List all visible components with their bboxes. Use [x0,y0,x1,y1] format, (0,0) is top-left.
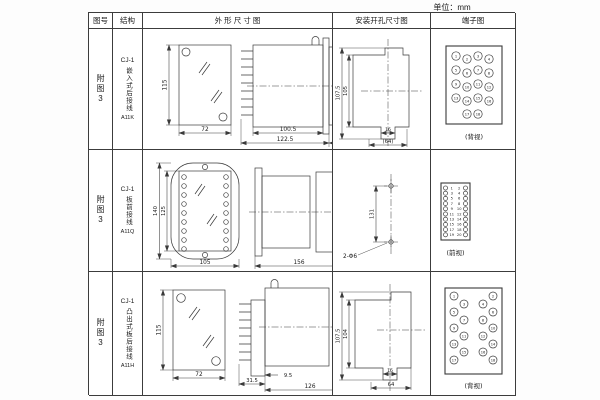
dim-depth-body: 126 [304,384,315,390]
dim-outer-height: 140 [153,206,159,216]
row2-outline-cell: 140 125 105 156 115 [143,150,333,272]
dim-hole-spacing: 131 [370,209,376,219]
terminal-drawing-a11q: 12 34 56 78 910 1112 1314 1516 1718 1920… [431,150,515,271]
terminal-number: 4 [488,57,491,61]
relay-case [179,171,231,251]
terminal-number: 15 [462,350,467,354]
terminal-number: 13 [450,218,455,222]
dim-depth-total: 122.5 [277,137,294,143]
terminal-number: 19 [450,233,455,237]
header-outline: 外 形 尺 寸 图 [143,13,333,29]
dimension-table: 图号 结构 外 形 尺 寸 图 安装开孔尺寸图 端子图 附图3 CJ-1 嵌入式… [88,12,515,395]
terminal-number: 3 [451,192,453,196]
terminal-number: 16 [481,350,486,354]
row3-code: A11H [121,363,134,369]
terminal-number: 9 [451,207,454,211]
terminal-number: 4 [482,302,485,306]
row3-mounting-cell: 107.5 104 16 64 [333,272,431,396]
row2-mounting-cell: 131 2-Φ6 [333,150,431,272]
terminal-number: 14 [465,99,470,103]
terminal-number: 10 [491,326,496,330]
view-label: (前视) [446,248,464,257]
row2-structure-text: 板前接线 [123,196,133,226]
terminal-number: 18 [476,112,481,116]
side-view: 100.5 122.5 35 [241,37,332,148]
terminal-number: 11 [476,82,481,86]
dim-notch: 16 [387,368,393,374]
terminal-number: 4 [458,192,461,196]
row3-model: CJ-1 [121,298,135,305]
terminal-number: 9 [453,326,456,330]
terminal-number: 6 [466,71,469,75]
terminal-number: 1 [455,54,457,58]
terminal-number: 5 [455,68,457,72]
row1-terminal-cell: 1 2 3 4 5 6 7 8 9 10 11 12 13 14 15 16 1… [431,29,516,150]
terminal-number: 15 [450,223,455,227]
front-view: 140 125 105 [153,163,239,268]
row2-figure: 附图3 [89,150,113,272]
flange-plate [171,163,239,259]
dim-outer-height: 107.5 [336,86,342,101]
front-view: 115 72 [163,45,232,136]
terminal-number: 17 [450,228,455,232]
terminal-number: 17 [452,358,457,362]
row3-structure-text: 凸出式板后接线 [123,308,133,361]
dim-depth: 156 [293,260,304,266]
dim-height: 115 [163,79,169,90]
terminal-number: 12 [457,212,462,216]
row1-structure-text: 嵌入式后接线 [123,67,133,112]
view-label: (背视) [465,132,483,141]
row1-figure: 附图3 [89,29,113,150]
row1-outline-cell: 115 72 100.5 122.5 35 [143,29,333,150]
outline-drawing-a11k: 115 72 100.5 122.5 35 [143,29,332,149]
terminal-number: 13 [454,96,459,100]
terminal-number: 8 [488,71,491,75]
terminal-number: 2 [458,186,460,190]
row3-figure: 附图3 [89,272,113,396]
row1-model: CJ-1 [121,57,135,64]
terminal-pins [239,304,251,360]
terminal-number: 3 [477,54,479,58]
row3-outline-cell: 115 72 31.5 9.5 126 [143,272,333,396]
dim-width: 72 [195,372,203,378]
header-terminal: 端子图 [431,13,516,29]
row2-model: CJ-1 [121,186,135,193]
terminal-number: 7 [451,202,453,206]
cutout-outline [355,292,411,380]
dim-opening: (64) [383,139,394,145]
row2-code: A11Q [121,229,135,235]
terminal-grid: 12 34 56 78 910 1112 1314 1516 1718 1920 [443,186,467,237]
terminal-number: 12 [487,85,492,89]
dim-opening: 64 [388,382,395,388]
terminal-number: 14 [491,342,496,346]
header-figure: 图号 [89,13,113,29]
terminal-number: 10 [457,207,462,211]
header-structure: 结构 [113,13,143,29]
terminal-number: 6 [458,197,461,201]
terminal-number: 16 [457,223,462,227]
dim-inner-height: 105 [343,86,349,96]
dim-depth-gap: 9.5 [284,373,292,379]
dim-inner-height: 104 [343,328,349,339]
terminal-number: 5 [453,310,455,314]
terminal-number: 17 [465,112,470,116]
lifting-hook [271,280,278,289]
row1-structure: CJ-1 嵌入式后接线 A11K [113,29,143,150]
dim-width: 105 [199,260,210,266]
outline-drawing-a11h: 115 72 31.5 9.5 126 [143,272,332,395]
mounting-drawing-a11k: 107.5 105 16 (64) [333,29,430,149]
dim-inner-height: 125 [161,206,167,216]
terminal-drawing-a11h: 1 2 3 4 5 6 7 8 9 10 11 12 13 14 15 16 1… [431,272,515,395]
terminal-number: 15 [476,96,481,100]
terminal-number: 7 [463,318,465,322]
terminal-number: 12 [481,334,486,338]
terminal-number: 2 [492,294,494,298]
header-mounting: 安装开孔尺寸图 [333,13,431,29]
terminal-number: 6 [492,310,495,314]
terminal-number: 20 [457,233,462,237]
mounting-drawing-a11q: 131 2-Φ6 [333,150,430,271]
terminal-number: 9 [455,82,458,86]
dim-notch: 16 [385,127,391,133]
terminal-number: 18 [457,228,462,232]
side-view: 156 115 [249,168,332,269]
row1-code: A11K [121,115,134,121]
terminal-number: 2 [466,57,468,61]
hole-callout: 2-Φ6 [343,254,357,260]
terminal-number: 14 [457,218,462,222]
terminal-base [251,300,265,376]
terminal-number: 1 [451,186,453,190]
terminal-grid: 1 2 3 4 5 6 7 8 9 10 11 12 13 14 15 16 1… [450,292,497,364]
terminal-number: 18 [491,358,496,362]
row1-mounting-cell: 107.5 105 16 (64) [333,29,431,150]
terminal-number: 3 [463,302,465,306]
view-label: (背视) [464,381,482,390]
terminal-number: 13 [452,342,457,346]
terminal-number: 10 [465,85,470,89]
terminal-drawing-a11k: 1 2 3 4 5 6 7 8 9 10 11 12 13 14 15 16 1… [431,29,515,149]
dim-depth-front: 31.5 [246,378,258,384]
terminal-number: 11 [462,334,467,338]
terminal-number: 16 [487,99,492,103]
terminal-number: 8 [458,202,461,206]
terminal-number: 5 [451,197,453,201]
terminal-grid: 1 2 3 4 5 6 7 8 9 10 11 12 13 14 15 16 1… [452,52,493,118]
dim-height: 115 [157,324,163,335]
front-view: 115 72 [157,290,226,381]
terminal-number: 1 [453,294,455,298]
dim-width: 72 [201,127,209,133]
row3-terminal-cell: 1 2 3 4 5 6 7 8 9 10 11 12 13 14 15 16 1… [431,272,516,396]
outline-drawing-a11q: 140 125 105 156 115 [143,150,332,271]
row3-structure: CJ-1 凸出式板后接线 A11H [113,272,143,396]
lifting-hook [312,37,319,46]
mounting-drawing-a11h: 107.5 104 16 64 [333,272,430,395]
dim-depth-body: 100.5 [280,127,297,133]
dim-outer-height: 107.5 [336,329,342,344]
terminal-number: 8 [482,318,485,322]
side-view: 31.5 9.5 126 [239,280,332,393]
terminal-number: 7 [477,68,479,72]
terminal-pins [241,51,253,115]
row2-terminal-cell: 12 34 56 78 910 1112 1314 1516 1718 1920… [431,150,516,272]
cutout-outline [353,48,409,139]
terminal-number: 11 [450,212,455,216]
row2-structure: CJ-1 板前接线 A11Q [113,150,143,272]
